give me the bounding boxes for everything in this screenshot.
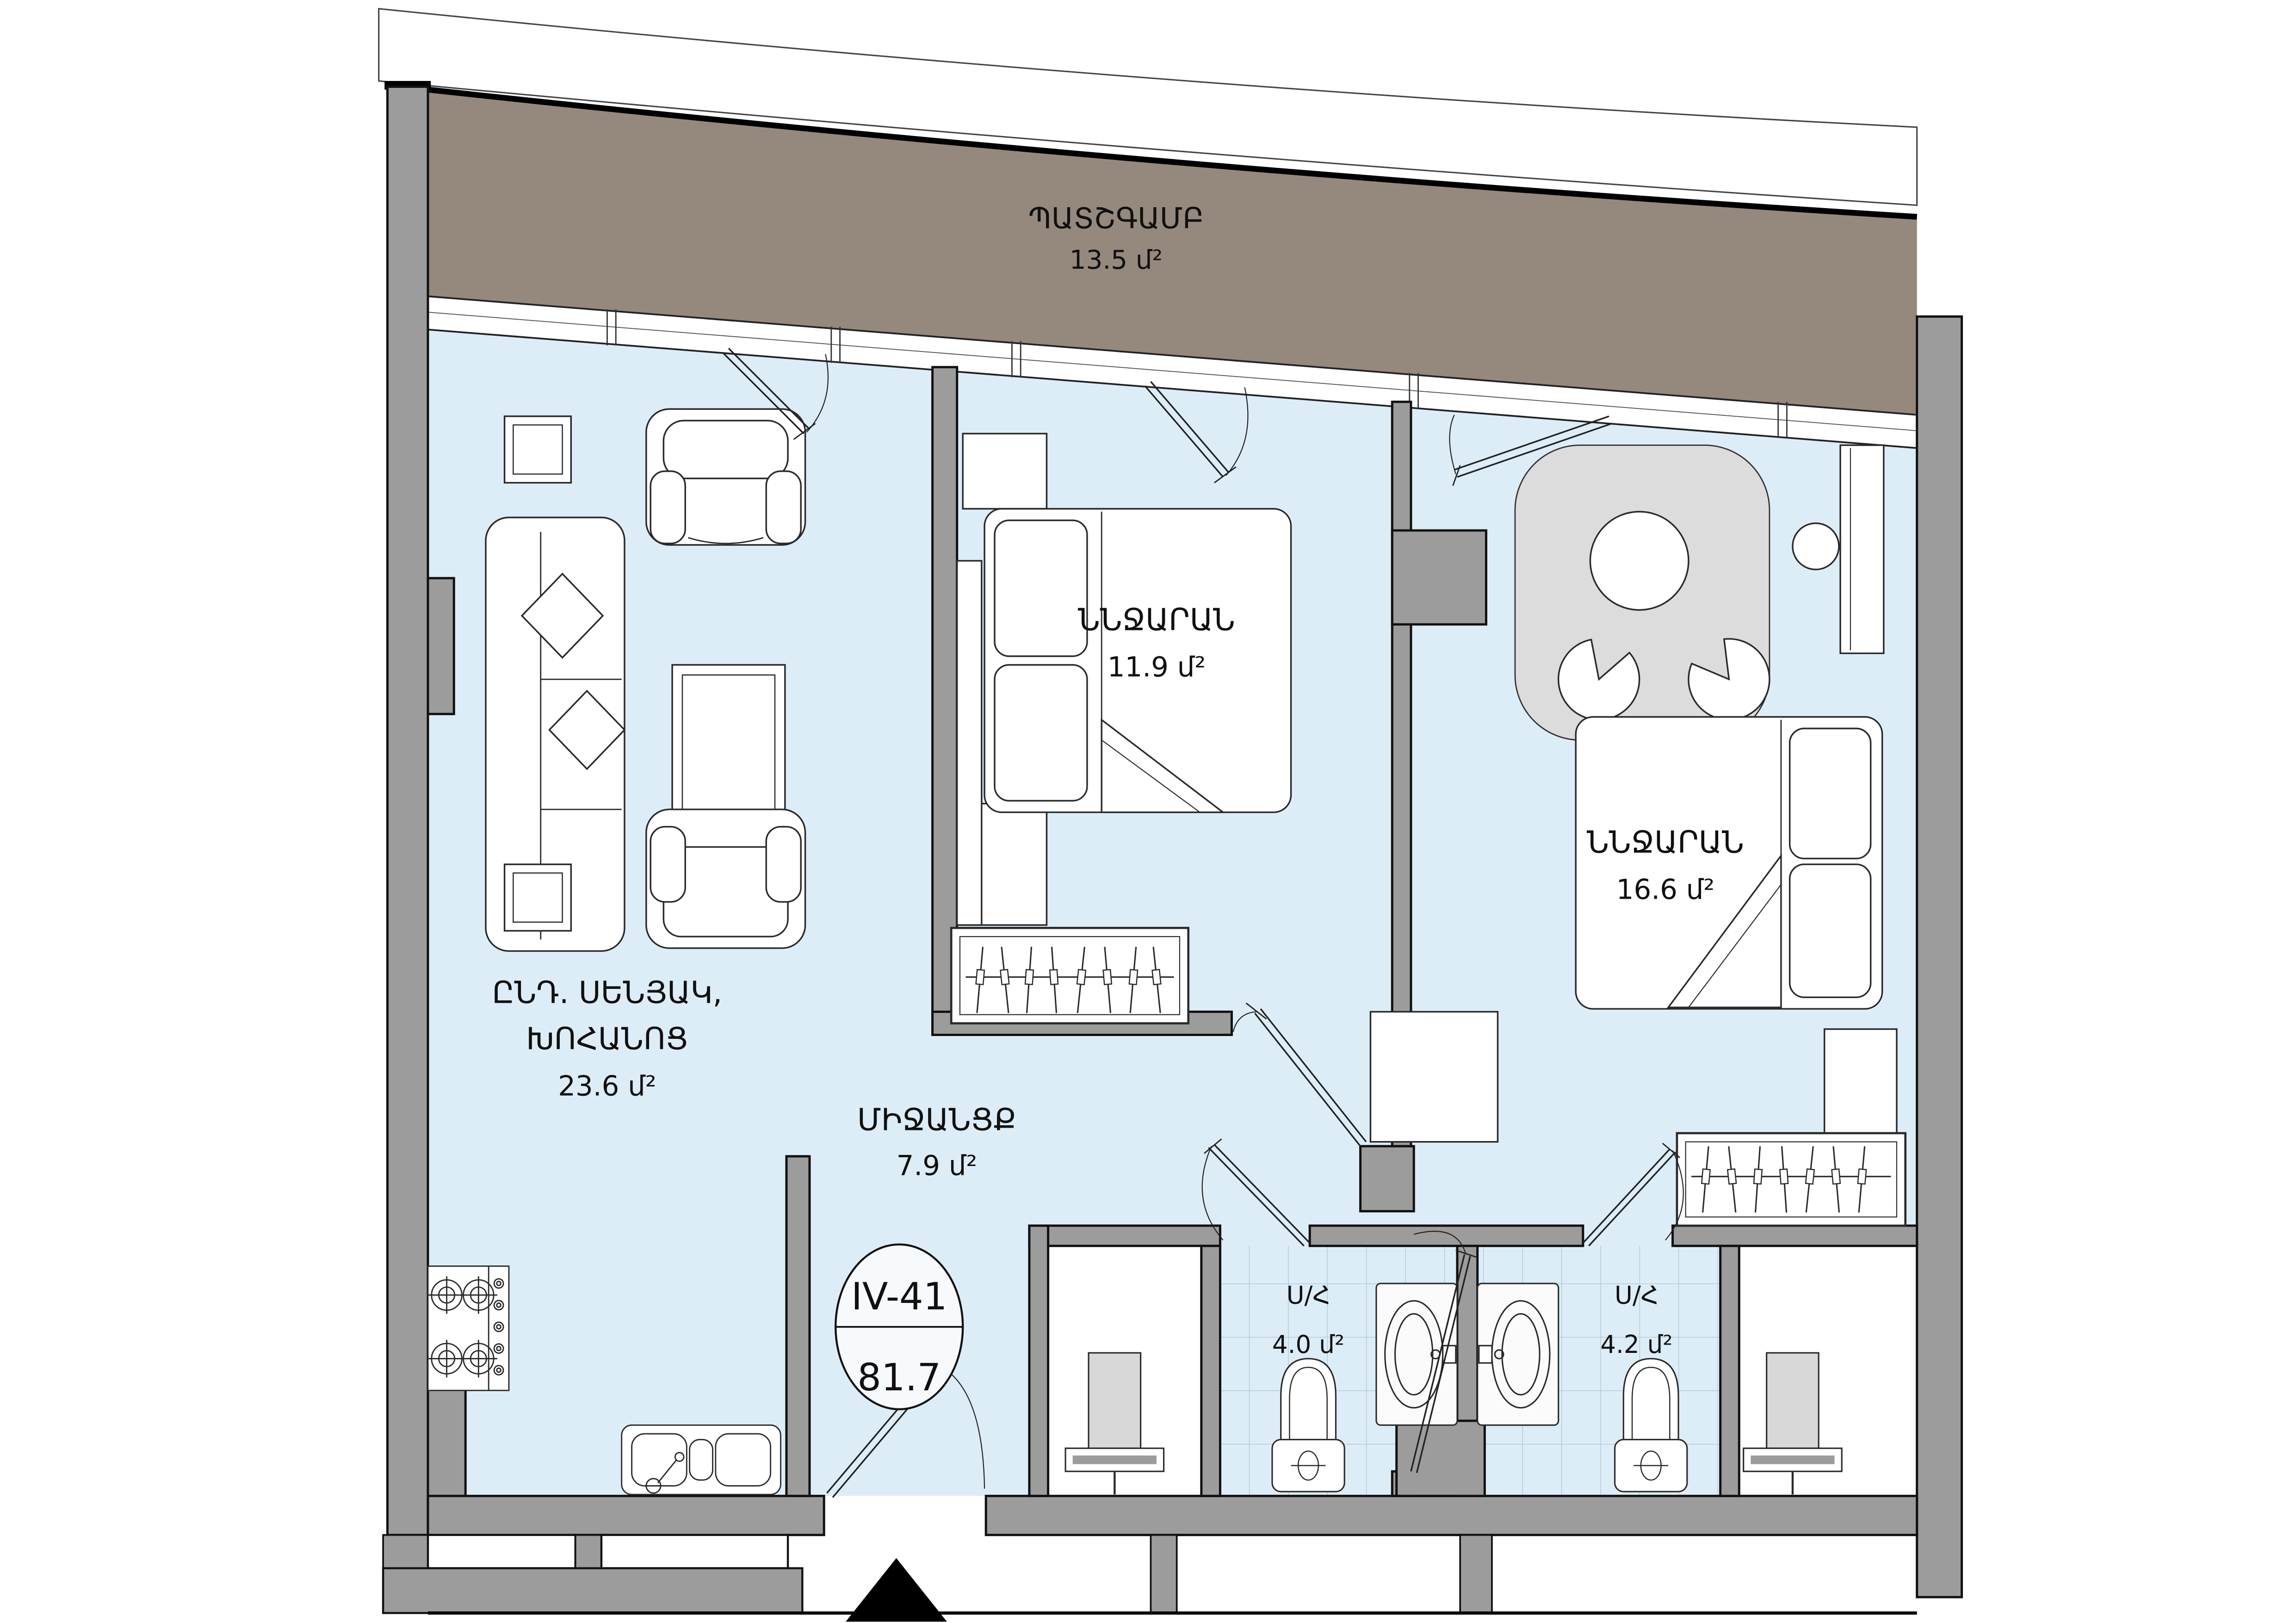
wall-bottom-right <box>986 1496 1917 1535</box>
bath2-label: Ս/Հ <box>1615 1281 1659 1310</box>
bath1-area-value: 4.0 մ² <box>1272 1330 1344 1359</box>
exterior-structures <box>383 1535 1917 1622</box>
wall-frame-top <box>505 416 571 483</box>
bedroom2-label: ՆՆՋԱՐԱՆ <box>1587 825 1744 860</box>
kitchen-sink <box>622 1425 781 1494</box>
wall-bath1-left <box>1201 1246 1220 1496</box>
pillow <box>995 665 1087 801</box>
wall-bath-top-3 <box>1673 1226 1917 1246</box>
wall-stub-hall <box>1361 1146 1414 1211</box>
wardrobe-bedroom2 <box>1677 1133 1906 1226</box>
wall-niche1-left <box>1029 1226 1048 1496</box>
wall-bath-top-2 <box>1310 1226 1583 1246</box>
living-area-value: 23.6 մ² <box>558 1071 656 1103</box>
armchair-top <box>646 409 805 545</box>
balcony-area-value: 13.5 մ² <box>1070 245 1163 275</box>
stool <box>1793 523 1839 569</box>
toilet-bath2 <box>1615 1358 1687 1491</box>
wall-bath2-right <box>1720 1246 1739 1496</box>
wall-frame-bottom <box>505 864 571 931</box>
bed-double <box>1576 717 1882 1009</box>
armchair-bottom <box>646 809 805 948</box>
floor-plan-drawing: IV-41 81.7 ՊԱՏՇԳԱՄԲ 13.5 մ² ՆՆՋԱՐԱՆ 11.9… <box>0 0 2296 1623</box>
wall-right <box>1917 316 1962 1597</box>
wall-bottom-left <box>428 1496 824 1535</box>
wall-plumbing-chase <box>1397 1421 1485 1496</box>
nightstand-right <box>1825 1029 1897 1136</box>
sink-bath1 <box>1376 1284 1457 1425</box>
dresser-top <box>963 433 1046 508</box>
hallway-label: ՄԻՋԱՆՑՔ <box>857 1103 1016 1138</box>
wall-pier-left <box>428 578 454 714</box>
wall-kitchen-stub <box>786 1156 810 1496</box>
sink-bath2 <box>1478 1284 1559 1425</box>
bath2-area-value: 4.2 մ² <box>1600 1330 1672 1359</box>
unit-badge: IV-41 81.7 <box>835 1245 963 1409</box>
living-label-line2: ԽՈՀԱՆՈՑ <box>526 1022 688 1057</box>
wall-bath-top-1 <box>1029 1226 1220 1246</box>
balcony-label: ՊԱՏՇԳԱՄԲ <box>1028 202 1204 235</box>
unit-total-area: 81.7 <box>857 1356 941 1400</box>
floor-plan-page: IV-41 81.7 ՊԱՏՇԳԱՄԲ 13.5 մ² ՆՆՋԱՐԱՆ 11.9… <box>0 0 2296 1623</box>
pillow <box>995 520 1087 656</box>
toilet-bath1 <box>1272 1358 1344 1491</box>
unit-number: IV-41 <box>851 1275 947 1319</box>
bath1-label: Ս/Հ <box>1287 1281 1331 1310</box>
pillow <box>1790 864 1871 997</box>
wardrobe-bedroom1 <box>951 928 1188 1023</box>
living-label-line1: ԸՆԴ. ՍԵՆՅԱԿ, <box>492 975 723 1011</box>
wall-left <box>387 87 427 1535</box>
wall-column <box>1392 531 1486 624</box>
bedroom2-area-value: 16.6 մ² <box>1616 874 1714 906</box>
tall-wardrobe-right <box>1840 445 1884 653</box>
bedroom1-area-value: 11.9 մ² <box>1108 651 1206 683</box>
tall-cabinet <box>957 561 982 925</box>
pillow <box>1790 728 1871 858</box>
stove <box>428 1266 509 1390</box>
round-table <box>1590 512 1688 610</box>
hallway-area-value: 7.9 մ² <box>897 1150 978 1182</box>
entrance-arrow-icon <box>846 1558 947 1622</box>
bedroom1-label: ՆՆՋԱՐԱՆ <box>1078 602 1235 637</box>
dresser-left <box>1370 1012 1498 1142</box>
